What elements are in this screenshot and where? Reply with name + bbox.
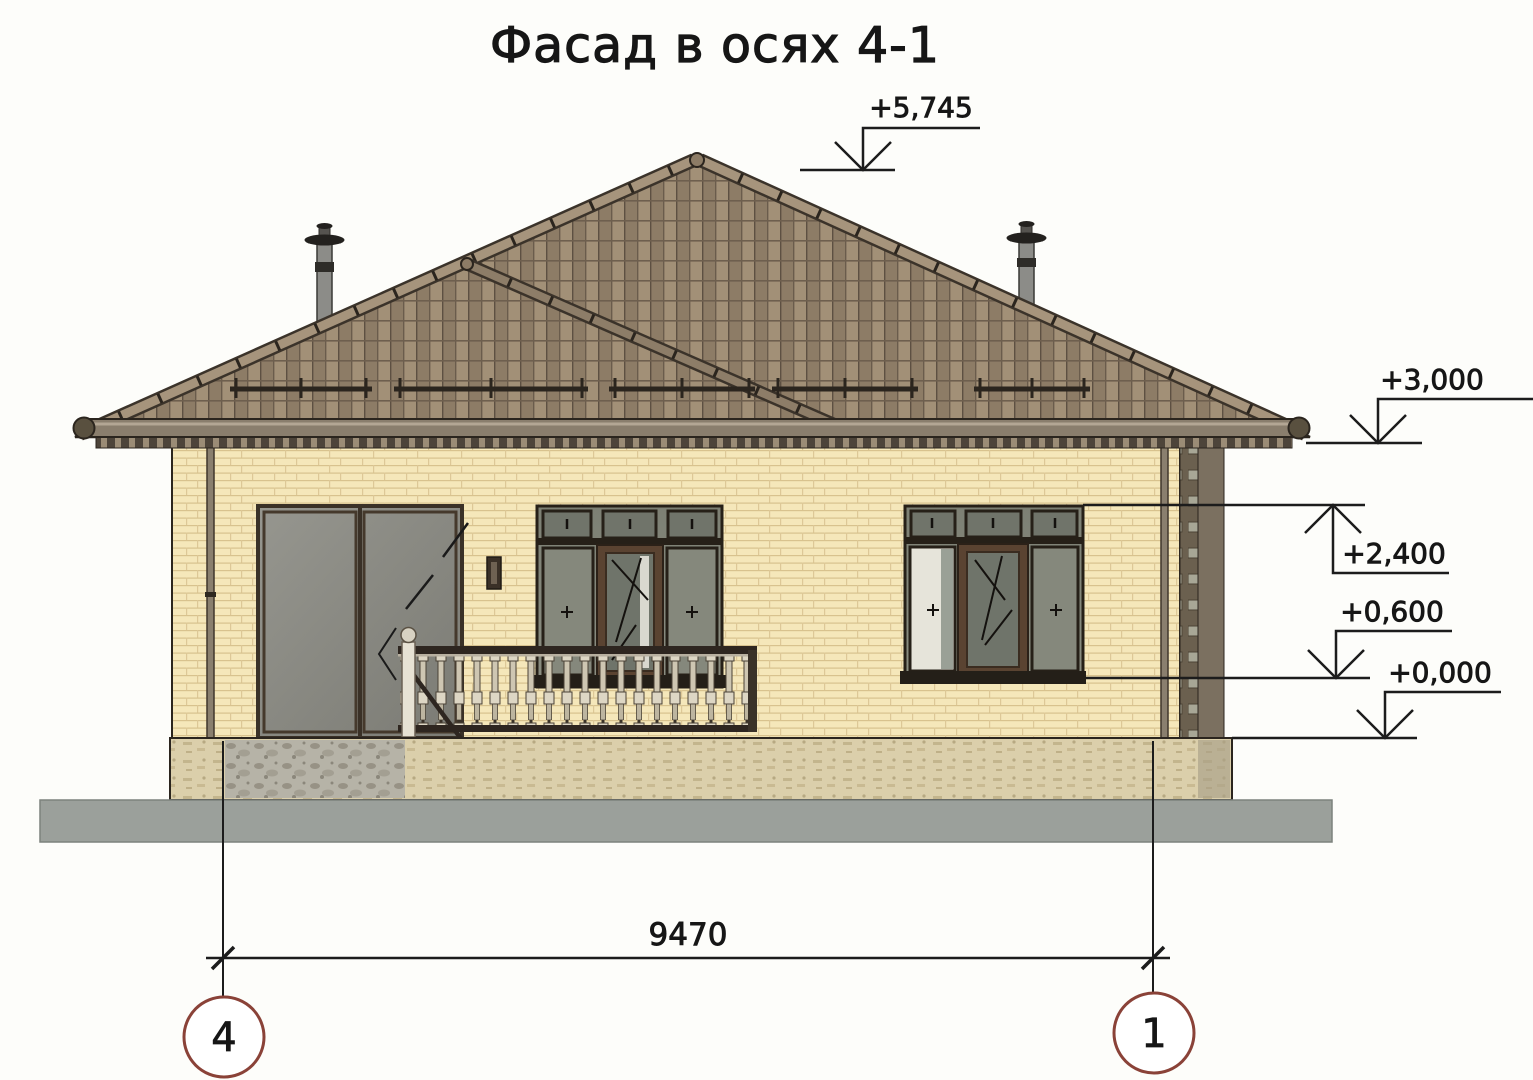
railing-post	[402, 642, 415, 737]
plinth	[170, 738, 1232, 800]
railing-top-rail	[398, 646, 757, 654]
drawing-title: Фасад в осях 4-1	[490, 17, 940, 74]
facade-drawing-sheet: Фасад в осях 4-1 +5,745 +3,000 +2,400 +0…	[0, 0, 1533, 1080]
facade-drawing: Фасад в осях 4-1 +5,745 +3,000 +2,400 +0…	[0, 0, 1533, 1080]
elevation-mark-zero	[1232, 692, 1501, 738]
corner-quoin	[1180, 447, 1198, 740]
chimney-cap	[305, 235, 345, 246]
entrance-stoop	[225, 740, 405, 798]
elevation-label-window-sill: +0,600	[1340, 595, 1444, 628]
dimension-value: 9470	[649, 917, 728, 953]
ground-strip	[40, 800, 1332, 842]
wall-lamp	[487, 557, 501, 589]
elevation-label-window-top: +2,400	[1342, 537, 1446, 570]
axis-label-4: 4	[211, 1015, 236, 1061]
right-window-sill	[900, 671, 1086, 684]
elevation-mark-ridge	[800, 128, 980, 170]
elevation-label-ridge: +5,745	[869, 91, 973, 124]
right-window	[900, 506, 1086, 684]
elevation-label-eave: +3,000	[1380, 363, 1484, 396]
gutter	[74, 418, 1310, 439]
axis-label-1: 1	[1141, 1011, 1166, 1057]
elevation-label-zero: +0,000	[1388, 656, 1492, 689]
roof	[74, 153, 1311, 448]
downpipe-right	[1161, 447, 1168, 738]
corner-return-wall	[1198, 447, 1224, 740]
elevation-mark-eave	[1306, 399, 1533, 443]
railing-post-finial	[401, 628, 416, 643]
chimney-cap	[1007, 233, 1047, 244]
